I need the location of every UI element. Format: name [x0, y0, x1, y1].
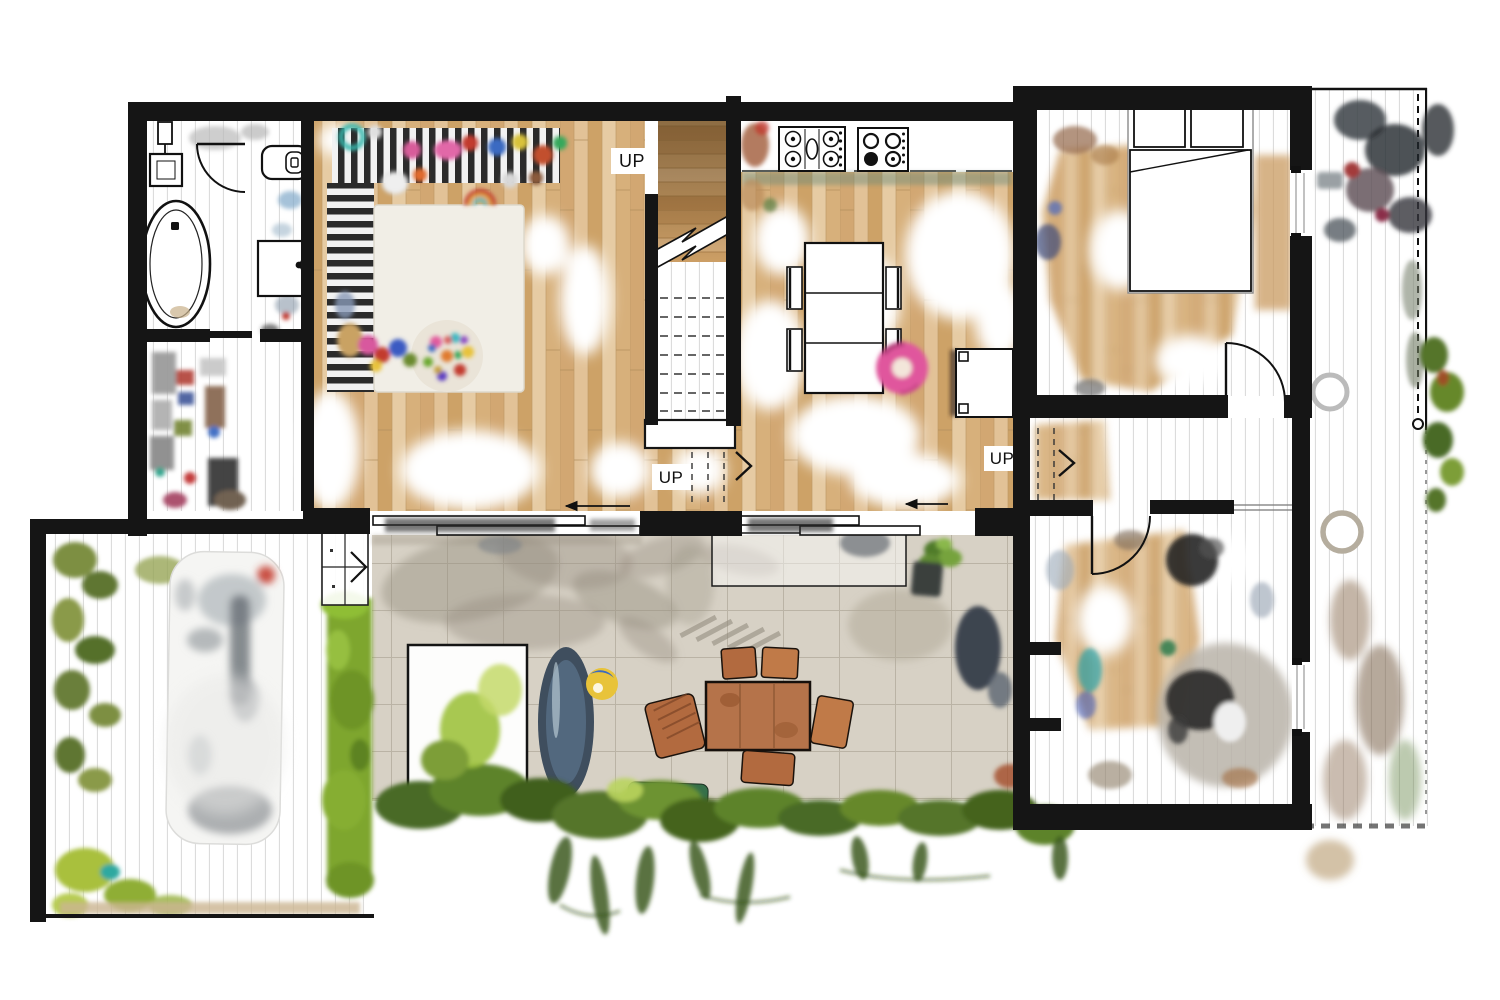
up-label-main-text: UP: [619, 151, 645, 171]
hall-wood-patch: [1035, 420, 1110, 500]
laundry-door-leaf: [206, 331, 252, 338]
wall-top: [128, 102, 1018, 121]
up-label-left: UP: [652, 464, 691, 490]
outdoor-chair: [761, 647, 799, 679]
hanging-foliage: [543, 835, 1068, 936]
striped-rug-side: [327, 183, 374, 392]
counter-shadow: [742, 172, 1012, 185]
trampoline-mat: [546, 660, 586, 784]
gas-hob: [779, 127, 845, 171]
car-taillight: [257, 566, 275, 584]
up-label-main: UP: [611, 148, 653, 174]
beach-ball: [586, 668, 618, 700]
bathtub: [142, 201, 210, 327]
wall-bedroom-bottom: [1013, 395, 1228, 418]
vanity-cabinet: [258, 241, 303, 296]
pillow: [1134, 104, 1185, 147]
floor-plan-page: UP UP UP: [0, 0, 1500, 1000]
up-label-right-text: UP: [990, 449, 1015, 468]
yard-bottom-line: [44, 914, 374, 918]
wall-bedroom-top: [1013, 86, 1312, 110]
wall-bedroom-right-upper: [1290, 86, 1312, 170]
wall-office-left: [1013, 418, 1030, 830]
wall-bottom-right: [975, 508, 1017, 536]
fridge-cabinet: [950, 349, 1013, 417]
gravel-strip: [60, 902, 360, 914]
wall-office-right-upper: [1292, 418, 1310, 662]
basket-ring: [1323, 513, 1361, 551]
bed: [1128, 100, 1253, 293]
pool-float: [876, 342, 928, 394]
teddy-bear: [337, 323, 363, 357]
wall-office-top-left: [1013, 500, 1093, 516]
office-window: [1292, 658, 1310, 736]
wall-stair-left: [645, 194, 658, 425]
wall-stub: [1030, 718, 1061, 731]
hedge-side: [321, 591, 374, 898]
bedroom-wood-noise: [1255, 155, 1292, 310]
dining-table: [805, 243, 883, 393]
up-label-left-text: UP: [659, 468, 684, 487]
induction-hob: [858, 128, 908, 171]
wall-left: [128, 102, 147, 536]
outdoor-table: [706, 682, 810, 750]
outdoor-chair: [741, 750, 795, 786]
tub-drain: [171, 222, 179, 230]
wall-yard-top: [30, 519, 306, 534]
bedroom-balcony-window: [1290, 166, 1312, 240]
wall-office-bottom: [1013, 804, 1312, 830]
hall-cabinet: [645, 420, 735, 448]
floor-plan-svg: UP UP UP: [0, 0, 1500, 1000]
wall-yard-left: [30, 519, 46, 922]
wall-stair-right: [726, 96, 741, 426]
deck-box: [1317, 172, 1343, 189]
outdoor-chair: [721, 647, 757, 679]
wall-bedroom-right-lower: [1290, 236, 1312, 418]
duvet: [1130, 150, 1251, 291]
wall-bath-laundry: [128, 329, 210, 342]
outdoor-chair: [810, 695, 854, 749]
wall-stub: [1030, 642, 1061, 655]
trampoline-highlight: [552, 662, 560, 738]
wall-bath-living: [301, 121, 314, 511]
round-rug: [411, 320, 483, 392]
car: [165, 551, 285, 845]
hose-ring: [1313, 375, 1347, 409]
wall-bottom-mid: [640, 511, 742, 536]
stair-lower-flight: [658, 262, 726, 425]
wall-bedroom-left: [1013, 86, 1037, 418]
wall-office-top-right: [1150, 500, 1234, 514]
entry-steps: [322, 533, 368, 605]
pillow: [1191, 104, 1243, 147]
